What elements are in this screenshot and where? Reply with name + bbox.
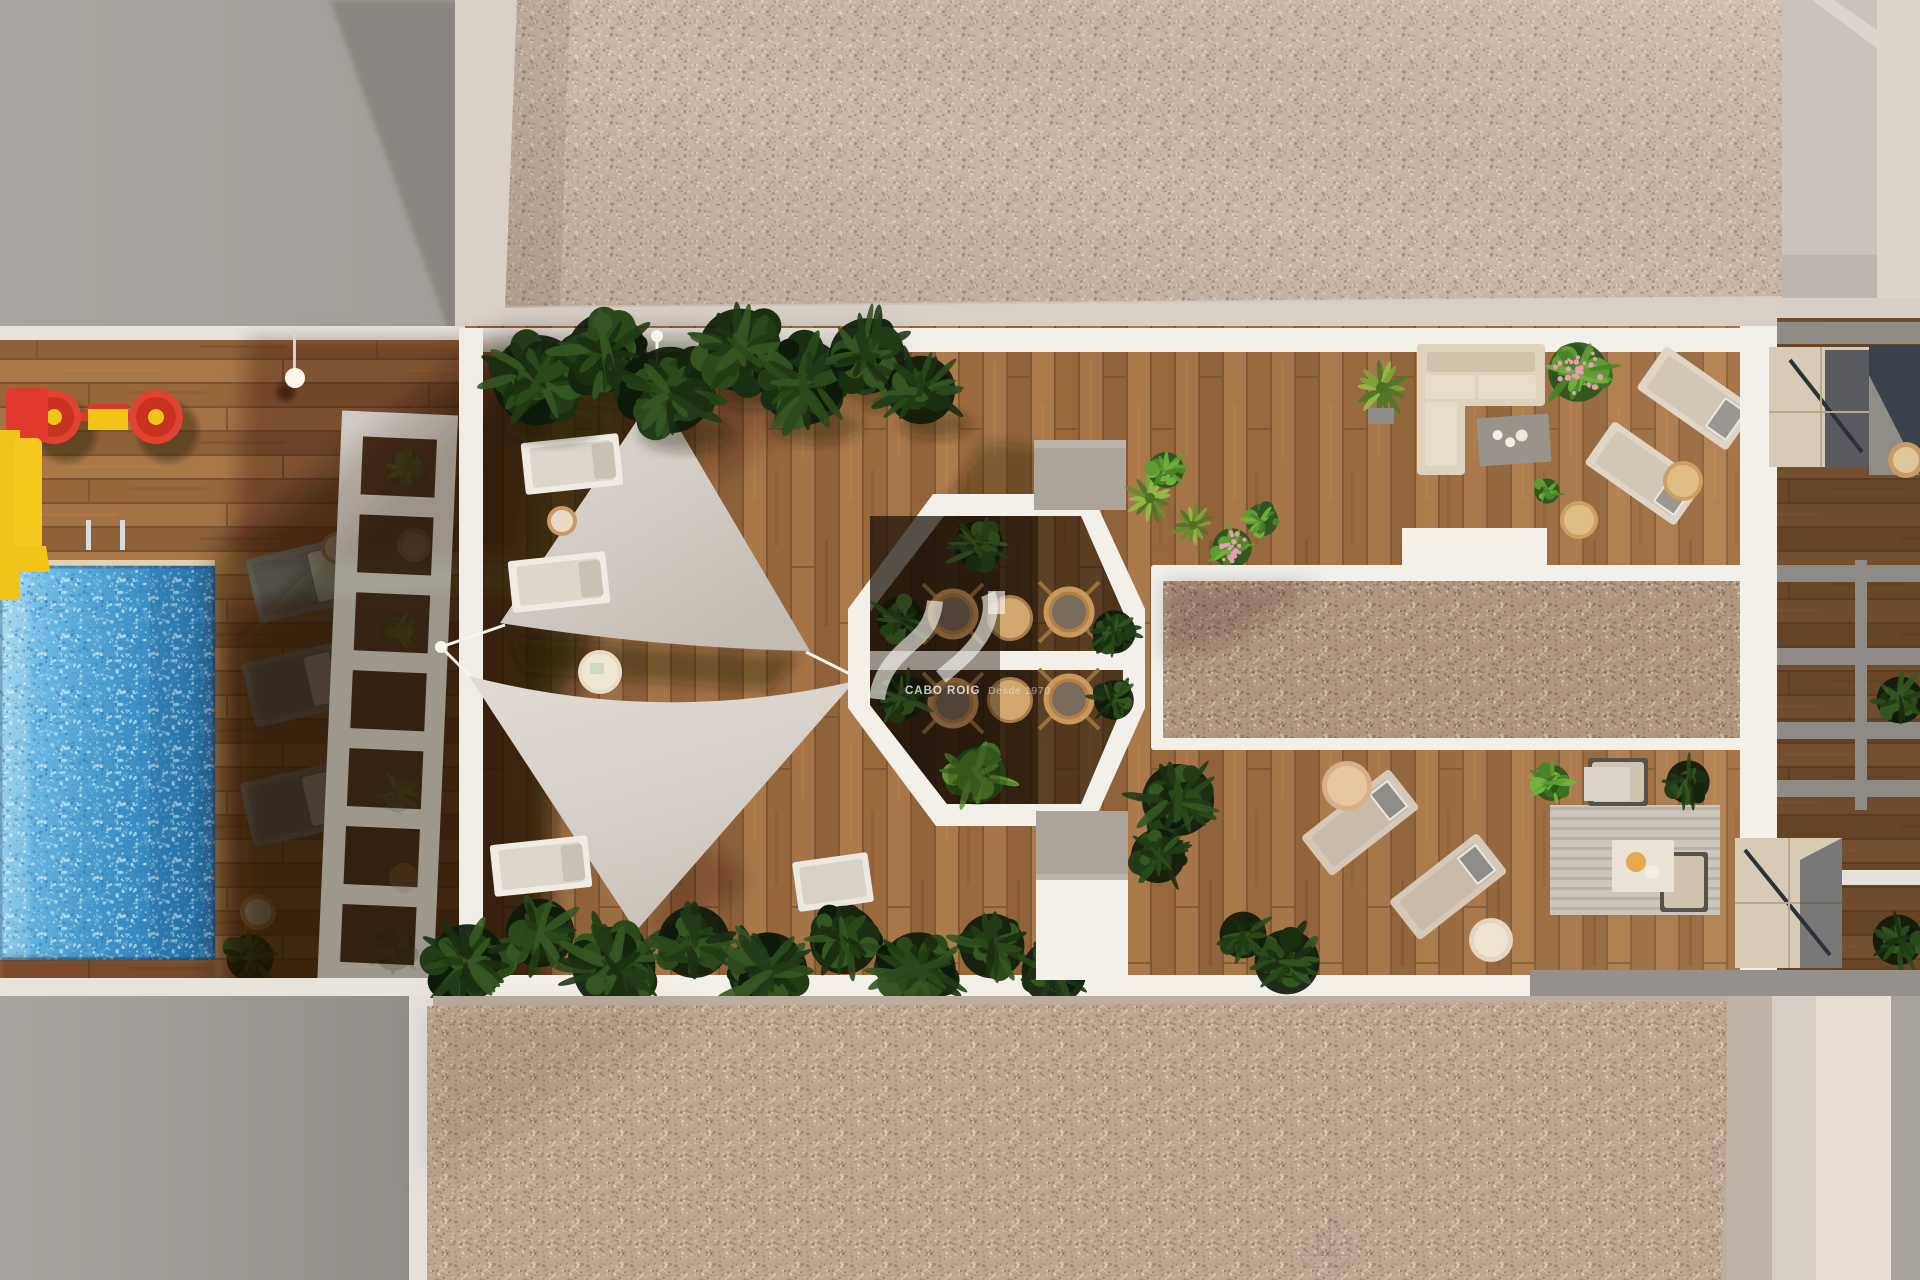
svg-text:Desde 1970: Desde 1970: [988, 685, 1051, 697]
svg-text:CABO ROIG: CABO ROIG: [905, 685, 980, 697]
